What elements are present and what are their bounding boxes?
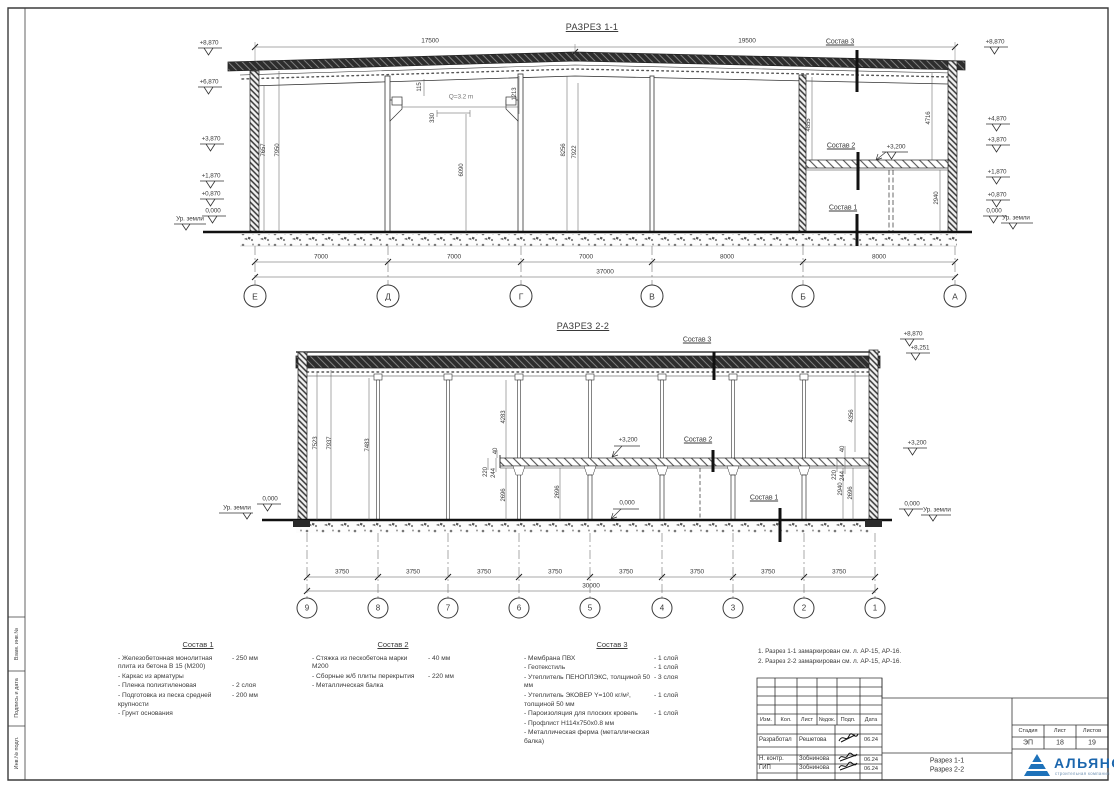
elevation-label: +3,200 <box>887 144 906 151</box>
tb-doc-title: Разрез 2-2 <box>930 767 964 774</box>
sostav1-callout: Состав 1 <box>829 205 857 212</box>
dim-label: 7950 <box>275 144 281 157</box>
legend-item: - Металлическая ферма (металлическая бал… <box>524 729 651 746</box>
dim-label: 3750 <box>690 569 704 576</box>
dim-label: 4716 <box>926 112 932 125</box>
dim-label: 17500 <box>421 38 439 45</box>
tb-col-header: Кол. <box>780 717 791 723</box>
ground-level-label: Ур. земли <box>1002 215 1030 222</box>
elevation-label: +0,870 <box>202 191 221 198</box>
note-line: 1. Разрез 1-1 замаркирован см. л. АР-15,… <box>758 648 901 655</box>
sostav2-callout: Состав 2 <box>827 143 855 150</box>
tb-role: Разработал <box>759 737 792 743</box>
elevation-label: +3,870 <box>202 136 221 143</box>
axis-bubble: 6 <box>509 598 530 619</box>
legend-item: - Утеплитель ЭКОВЕР Y=100 кг/м², толщино… <box>524 692 651 709</box>
sostav2-callout: Состав 2 <box>684 437 712 444</box>
legend-sostav-1: Состав 1 - Железобетонная монолитная пли… <box>118 640 278 720</box>
axis-bubble: 4 <box>652 598 673 619</box>
elevation-label: 0,000 <box>205 208 220 215</box>
dim-label: 30000 <box>582 583 600 590</box>
legend-item: - Грунт основания <box>118 710 229 719</box>
dim-label: 3750 <box>477 569 491 576</box>
elevation-label: +3,870 <box>988 137 1007 144</box>
legend-item: - Сборные ж/б плиты перекрытия <box>312 673 425 682</box>
axis-bubble: А <box>944 285 967 308</box>
axis-bubble: Б <box>792 285 815 308</box>
dim-label: 3750 <box>335 569 349 576</box>
legend-item: - Стяжка из пескобетона марки М200 <box>312 655 425 672</box>
dim-label: 4356 <box>849 410 855 423</box>
axis-bubble: Д <box>377 285 400 308</box>
tb-doc-title: Разрез 1-1 <box>930 758 964 765</box>
elevation-label: +8,870 <box>986 39 1005 46</box>
elevation-label: +8,251 <box>911 345 930 352</box>
elevation-label: 0,000 <box>262 496 277 503</box>
tb-stage-header: Лист <box>1054 728 1066 734</box>
tb-col-header: №док. <box>819 717 835 723</box>
tb-sheet-number: 18 <box>1056 740 1064 747</box>
tb-stage-value: ЭП <box>1023 740 1033 747</box>
section2-title: РАЗРЕЗ 2-2 <box>557 321 610 331</box>
dim-label: 7483 <box>365 439 371 452</box>
elevation-label: +3,200 <box>619 437 638 444</box>
dim-label: 7937 <box>327 437 333 450</box>
legend-item: - Металлическая балка <box>312 682 425 691</box>
elevation-label: +4,870 <box>988 116 1007 123</box>
elevation-label: 0,000 <box>986 208 1001 215</box>
legend-title: Состав 1 <box>118 640 278 650</box>
tb-col-header: Дата <box>865 717 877 723</box>
signature <box>837 732 859 744</box>
tb-date: 06.24 <box>864 766 878 772</box>
dim-label: 4855 <box>806 119 812 132</box>
dim-label: 3750 <box>832 569 846 576</box>
axis-bubble: 7 <box>438 598 459 619</box>
dim-label: 244 <box>840 471 846 481</box>
axis-bubble: Е <box>244 285 267 308</box>
legend-item: - Пленка полиэтиленовая <box>118 682 229 691</box>
tb-person: Зобнинова <box>799 765 829 771</box>
dim-label: 330 <box>430 113 436 123</box>
legend-item: - Геотекстиль <box>524 664 651 673</box>
axis-bubble: 2 <box>794 598 815 619</box>
dim-label: 3750 <box>761 569 775 576</box>
legend-item: - Железобетонная монолитная плита из бет… <box>118 655 229 672</box>
dim-label: 8000 <box>872 254 886 261</box>
legend-item: - Утеплитель ПЕНОПЛЭКС, толщиной 50 мм <box>524 674 651 691</box>
legend-sostav-2: Состав 2 - Стяжка из пескобетона марки М… <box>312 640 474 692</box>
dim-label: 1213 <box>512 88 518 101</box>
dim-label: 6090 <box>459 164 465 177</box>
legend-item: - Подготовка из песка средней крупности <box>118 692 229 709</box>
legend-sostav-3: Состав 3 - Мембрана ПВХ- 1 слой - Геотек… <box>524 640 700 747</box>
axis-bubble: В <box>641 285 664 308</box>
legend-item: - Каркас из арматуры <box>118 673 229 682</box>
elevation-label: +1,870 <box>202 173 221 180</box>
tb-person: Зобнинова <box>799 756 829 762</box>
legend-title: Состав 3 <box>524 640 700 650</box>
axis-bubble: Г <box>510 285 533 308</box>
dim-label: 19500 <box>738 38 756 45</box>
dim-label: 3750 <box>548 569 562 576</box>
signature <box>837 760 859 772</box>
legend-item: - Профлист Н114х750х0.8 мм <box>524 720 651 729</box>
elevation-label: +6,870 <box>200 79 219 86</box>
dim-label: 40 <box>493 448 499 454</box>
tb-stage-header: Листов <box>1083 728 1101 734</box>
elevation-label: +8,870 <box>904 331 923 338</box>
dim-label: 40 <box>840 446 846 452</box>
dim-label: 3750 <box>619 569 633 576</box>
dim-label: 8000 <box>720 254 734 261</box>
dim-label: 7523 <box>313 437 319 450</box>
dim-label: 2940 <box>934 192 940 205</box>
tb-date: 06.24 <box>864 737 878 743</box>
elevation-label: +8,870 <box>200 40 219 47</box>
dim-label: 7657 <box>261 144 267 157</box>
dim-label: 2696 <box>555 486 561 499</box>
axis-bubble: 1 <box>865 598 886 619</box>
note-line: 2. Разрез 2-2 замаркирован см. л. АР-15,… <box>758 658 901 665</box>
dim-label: 220 <box>832 470 838 480</box>
legend-title: Состав 2 <box>312 640 474 650</box>
company-logo-subtitle: строительная компания <box>1055 771 1110 776</box>
sostav3-callout: Состав 3 <box>683 337 711 344</box>
frame-stamp-label: Подпись и дата <box>14 678 20 718</box>
dim-label: 7922 <box>572 146 578 159</box>
dim-label: 8256 <box>561 144 567 157</box>
axis-bubble: 5 <box>580 598 601 619</box>
sostav1-callout: Состав 1 <box>750 495 778 502</box>
elevation-label: +0,870 <box>988 192 1007 199</box>
dim-label: 2696 <box>848 487 854 500</box>
tb-col-header: Лист <box>801 717 813 723</box>
legend-item: - Мембрана ПВХ <box>524 655 651 664</box>
tb-col-header: Подп. <box>841 717 856 723</box>
ground-level-label: Ур. земли <box>223 505 251 512</box>
dim-label: 244 <box>491 468 497 478</box>
drawing-sheet: РАЗРЕЗ 1-1 17500 19500 Состав 3 +8,870 +… <box>0 0 1114 786</box>
section1-title: РАЗРЕЗ 1-1 <box>566 22 619 32</box>
dim-label: 115 <box>417 82 423 91</box>
tb-sheet-count: 19 <box>1088 740 1096 747</box>
axis-bubble: 3 <box>723 598 744 619</box>
tb-role: ГИП <box>759 765 771 771</box>
axis-bubble: 9 <box>297 598 318 619</box>
legend-item: - Пароизоляция для плоских кровель <box>524 710 651 719</box>
crane-capacity-label: Q=3.2 m <box>449 94 473 101</box>
dim-label: 7000 <box>447 254 461 261</box>
dim-label: 37000 <box>596 269 614 276</box>
elevation-label: 0,000 <box>619 500 634 507</box>
dim-label: 220 <box>483 467 489 477</box>
dim-label: 7000 <box>314 254 328 261</box>
dim-label: 3750 <box>406 569 420 576</box>
dim-label: 2696 <box>501 489 507 502</box>
dim-label: 4283 <box>501 411 507 424</box>
ground-level-label: Ур. земли <box>176 216 204 223</box>
company-logo-text: АЛЬЯНС <box>1054 755 1114 771</box>
frame-stamp-label: Инв.№ подл. <box>14 737 20 770</box>
elevation-label: +1,870 <box>988 169 1007 176</box>
tb-date: 06.24 <box>864 757 878 763</box>
elevation-label: +3,200 <box>908 440 927 447</box>
dim-label: 2940 <box>838 483 844 496</box>
tb-person: Решетова <box>799 737 827 743</box>
tb-stage-header: Стадия <box>1018 728 1037 734</box>
tb-role: Н. контр. <box>759 756 784 762</box>
dim-label: 7000 <box>579 254 593 261</box>
company-logo-icon <box>1022 752 1052 778</box>
axis-bubble: 8 <box>368 598 389 619</box>
elevation-label: 0,000 <box>904 501 919 508</box>
sostav3-callout: Состав 3 <box>826 39 854 46</box>
ground-level-label: Ур. земли <box>923 507 951 514</box>
frame-stamp-label: Взам. инв.№ <box>14 628 20 661</box>
tb-col-header: Изм. <box>760 717 772 723</box>
